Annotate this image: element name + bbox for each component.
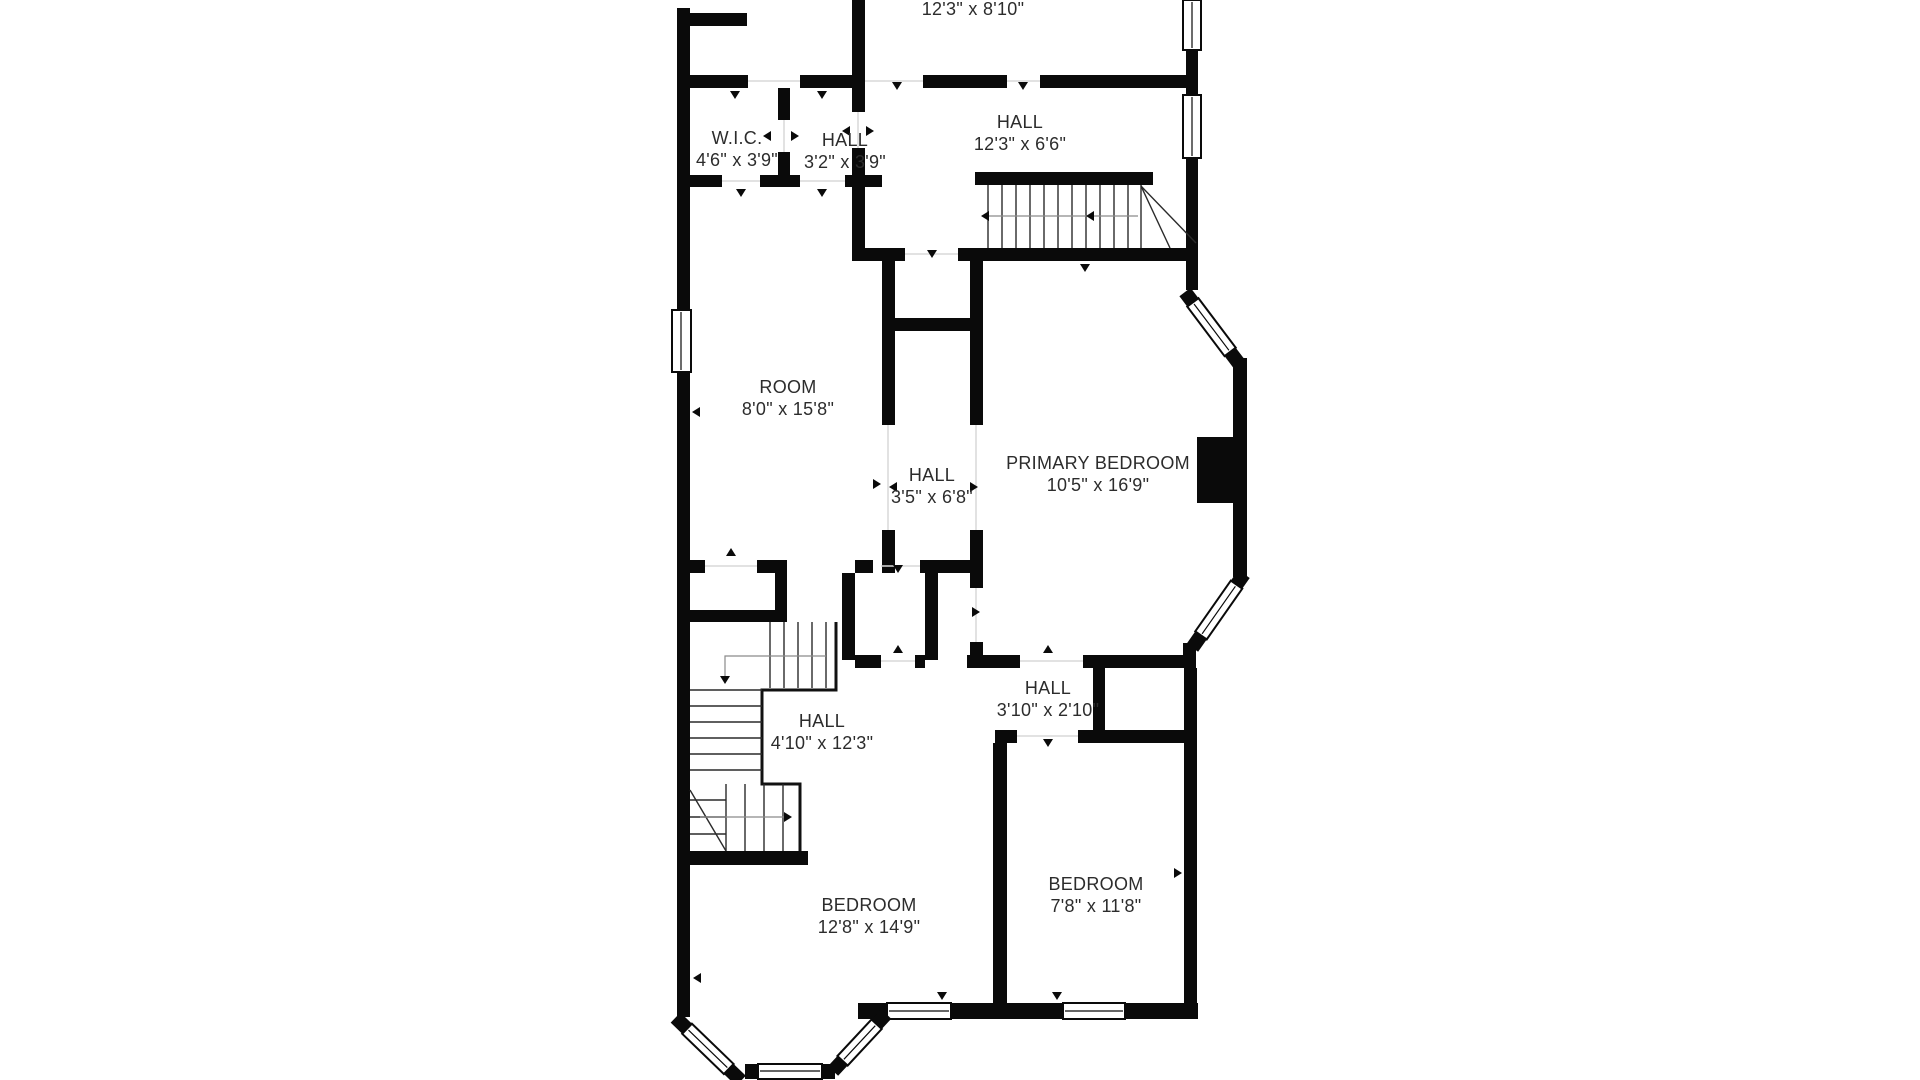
- room-dims: 4'6" x 3'9": [696, 150, 778, 170]
- room-dims: 3'10" x 2'10": [997, 700, 1100, 720]
- window-icon: [828, 1009, 891, 1076]
- room-name: BEDROOM: [1048, 874, 1143, 894]
- room-dims: 12'3" x 6'6": [974, 134, 1066, 154]
- window-icon: [745, 1064, 835, 1079]
- window-icon: [671, 1013, 746, 1080]
- room-name: PRIMARY BEDROOM: [1006, 453, 1190, 473]
- room-name: W.I.C.: [712, 128, 763, 148]
- window-icon: [1187, 570, 1250, 652]
- window-icon: [1183, 0, 1201, 50]
- room-name: BEDROOM: [821, 895, 916, 915]
- window-icon: [887, 1003, 951, 1019]
- room-dims: 10'5" x 16'9": [1047, 475, 1150, 495]
- room-name: HALL: [822, 130, 868, 150]
- floorplan-page: { "plan": { "type": "floor-plan", "backg…: [0, 0, 1920, 1080]
- window-icon: [1063, 1003, 1125, 1019]
- room-dims: 7'8" x 11'8": [1051, 896, 1142, 916]
- room-name: HALL: [997, 112, 1043, 132]
- room-name: HALL: [799, 711, 845, 731]
- window-icon: [672, 310, 691, 372]
- room-name: HALL: [909, 465, 955, 485]
- room-dims: 12'3" x 8'10": [922, 0, 1025, 19]
- window-icon: [1179, 288, 1244, 368]
- room-dims: 12'8" x 14'9": [818, 917, 921, 937]
- room-labels: 12'3" x 8'10" W.I.C. 4'6" x 3'9" HALL 3'…: [696, 0, 1190, 937]
- floor-plan: 12'3" x 8'10" W.I.C. 4'6" x 3'9" HALL 3'…: [0, 0, 1920, 1080]
- window-icon: [1183, 95, 1201, 158]
- staircase-upper: [981, 185, 1196, 248]
- room-name: HALL: [1025, 678, 1071, 698]
- room-name: ROOM: [759, 377, 816, 397]
- room-dims: 3'5" x 6'8": [891, 487, 973, 507]
- room-dims: 4'10" x 12'3": [771, 733, 874, 753]
- room-dims: 3'2" x 3'9": [804, 152, 886, 172]
- room-dims: 8'0" x 15'8": [742, 399, 834, 419]
